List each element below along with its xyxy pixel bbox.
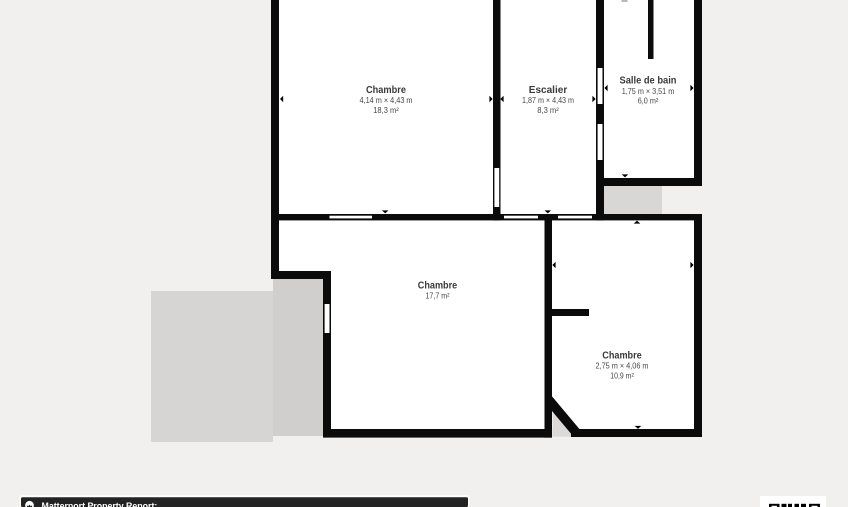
svg-text:Chambre: Chambre bbox=[418, 281, 458, 292]
svg-text:1,75 m × 3,51 m: 1,75 m × 3,51 m bbox=[622, 87, 675, 96]
svg-text:Escalier: Escalier bbox=[529, 85, 568, 96]
svg-text:Matterport Property Report:: Matterport Property Report: bbox=[42, 501, 158, 507]
svg-text:4,14 m × 4,43 m: 4,14 m × 4,43 m bbox=[360, 96, 413, 105]
svg-text:8,3 m²: 8,3 m² bbox=[537, 106, 559, 115]
svg-text:Chambre: Chambre bbox=[602, 351, 642, 362]
svg-text:18,3 m²: 18,3 m² bbox=[373, 106, 399, 115]
svg-text:17,7 m²: 17,7 m² bbox=[426, 292, 450, 301]
svg-text:Salle de bain: Salle de bain bbox=[620, 75, 677, 86]
svg-text:Chambre: Chambre bbox=[366, 85, 406, 96]
svg-text:1,87 m × 4,43 m: 1,87 m × 4,43 m bbox=[522, 96, 574, 105]
svg-text:6,0 m²: 6,0 m² bbox=[638, 97, 659, 106]
svg-text:2,75 m × 4,06 m: 2,75 m × 4,06 m bbox=[596, 362, 649, 371]
svg-text:10,9 m²: 10,9 m² bbox=[610, 372, 634, 381]
